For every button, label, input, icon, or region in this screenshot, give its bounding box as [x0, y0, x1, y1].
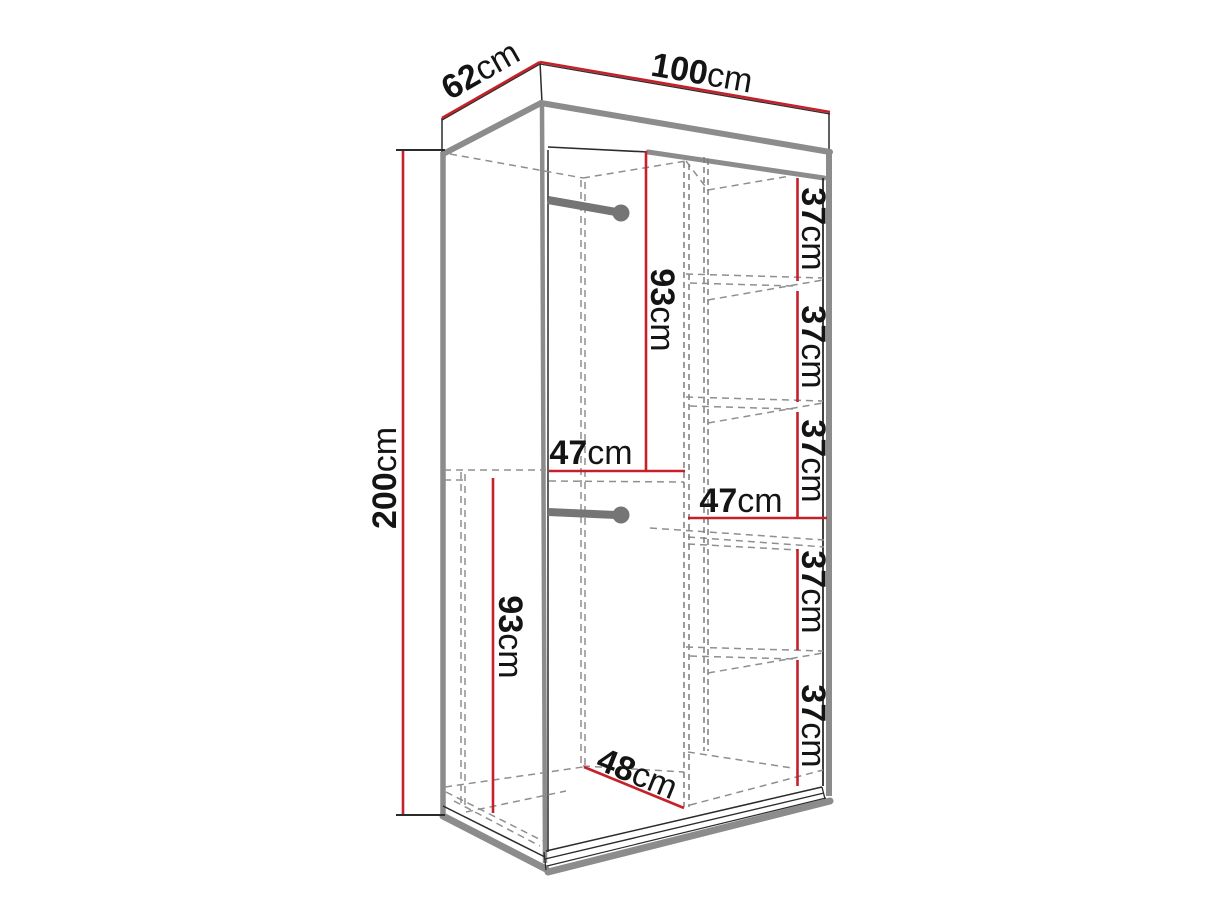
- dim-label-height: 200cm: [366, 427, 404, 529]
- dim-label-inner-right: 47cm: [699, 482, 782, 520]
- wardrobe-dimension-diagram: 62cm 100cm 200cm 93cm 93cm 47cm 47cm 48c…: [0, 0, 1228, 921]
- rod-end-cap: [613, 507, 630, 524]
- plinth: [443, 787, 830, 872]
- dim-label-shelf-3: 37cm: [794, 419, 832, 502]
- dim-label-shelf-1: 37cm: [794, 187, 832, 270]
- rod-end-cap: [613, 205, 630, 222]
- hanging-rod-bottom: [548, 507, 630, 524]
- dim-label-floor: 48cm: [591, 741, 682, 807]
- dim-label-hang-top: 93cm: [643, 268, 681, 351]
- dim-label-shelf-4: 37cm: [794, 550, 832, 633]
- wardrobe-diagram-page: 62cm 100cm 200cm 93cm 93cm 47cm 47cm 48c…: [0, 0, 1228, 921]
- dim-label-shelf-2: 37cm: [794, 305, 832, 388]
- dim-label-width: 100cm: [648, 46, 755, 101]
- cabinet-structure: [442, 62, 830, 872]
- dim-label-shelf-5: 37cm: [794, 684, 832, 767]
- hanging-rod-top: [548, 200, 630, 222]
- dim-label-inner-left: 47cm: [549, 434, 632, 472]
- dim-label-hang-bottom: 93cm: [491, 595, 529, 678]
